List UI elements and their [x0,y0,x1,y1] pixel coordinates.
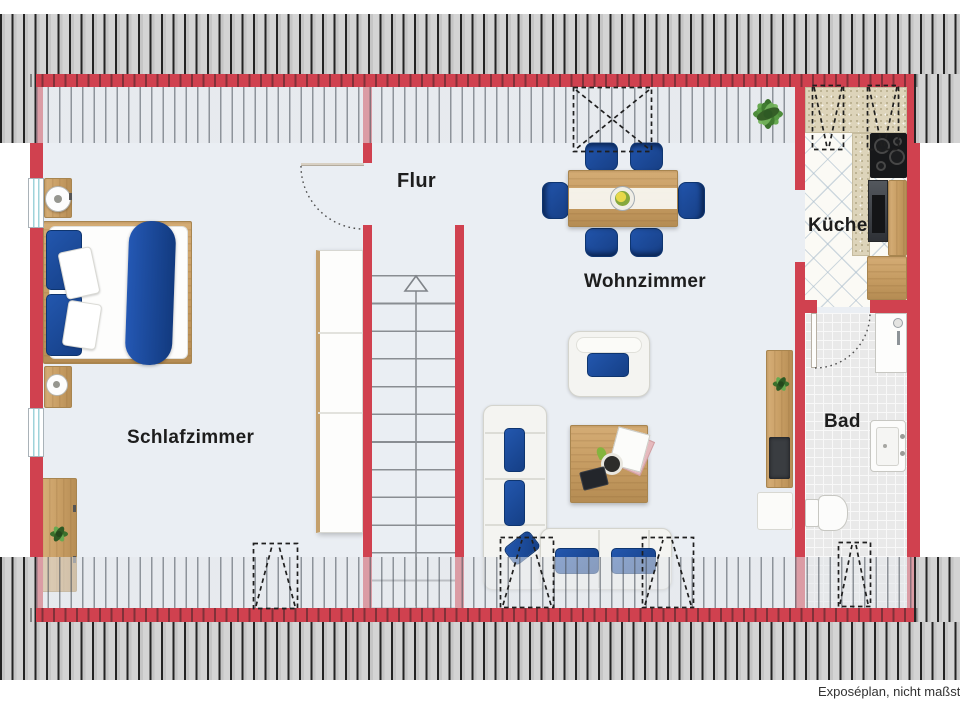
stair-wall-right [455,225,464,608]
roof-hatch-top-right [914,74,960,143]
bathroom-wall-top [870,300,907,313]
footer-note: Exposéplan, nicht maßstäblich [818,684,960,699]
dining-chair [630,228,663,257]
sink-drain-icon [883,444,887,448]
bathroom-wall-top [805,300,817,313]
tv [769,437,790,479]
wardrobe-divider [318,332,362,334]
dining-chair [585,228,618,257]
roof-slope-hatch-bottom [36,557,914,608]
oven-window [872,195,885,233]
dining-chair [542,182,569,219]
roof-hatch-bottom [0,622,960,680]
cooktop-icon [870,133,907,178]
kitchen-counter [805,87,907,133]
nightstand-handle [69,193,72,200]
blanket [125,220,177,366]
room-label-schlafzimmer: Schlafzimmer [127,428,254,447]
oven [868,180,888,242]
wardrobe-divider [318,412,362,414]
shower-fixture-icon [897,331,900,345]
dining-chair [678,182,705,219]
pillow-white [62,300,103,351]
armchair-seat-cushion [587,353,629,377]
coffee-cup-icon [604,456,620,472]
roof-hatch-wall-lines [30,608,920,622]
faucet-knob-icon [900,434,905,439]
dresser-handle [73,505,76,512]
sink-basin [876,427,899,466]
outer-wall-left [30,228,43,408]
kitchen-cabinet [867,256,907,300]
bathroom-sink [870,420,906,472]
room-label-kueche: Küche [808,216,868,235]
toilet [818,495,848,531]
window [28,178,44,228]
floor-plan: Schlafzimmer Flur Wohnzimmer Küche Bad E… [0,0,960,720]
bathroom-door-leaf [811,313,817,368]
sofa-cushion [504,428,525,472]
roof-hatch-top [0,14,960,74]
lamp-center-icon [54,195,62,203]
kitchen-cabinet [888,180,907,256]
wardrobe [316,250,363,533]
roof-slope-hatch-top [36,87,795,143]
dining-chair [585,142,618,171]
roof-hatch-wall-lines [30,74,920,87]
sofa-cushion [504,480,525,526]
toilet-tank [805,499,819,527]
shower-head-icon [893,318,903,328]
room-label-bad: Bad [824,412,861,431]
faucet-knob-icon [900,451,905,456]
outer-wall-right [907,74,920,622]
kitchen-wall [795,85,805,190]
shower [875,313,907,373]
burner-icon [893,137,902,146]
burner-icon [876,161,886,171]
dining-chair [630,142,663,171]
burner-icon [889,149,905,165]
bedroom-door-leaf [301,163,364,166]
roof-hatch-bottom-right [914,557,960,622]
fruit-icon [615,191,630,206]
stair-wall-left [363,225,372,608]
lowboard-cabinet [757,492,793,530]
room-label-wohnzimmer: Wohnzimmer [584,272,706,291]
burner-icon [874,138,890,154]
window [28,408,44,457]
armchair-back-cushion [576,337,642,353]
room-label-flur: Flur [397,171,436,191]
lamp-center-icon [53,381,60,388]
